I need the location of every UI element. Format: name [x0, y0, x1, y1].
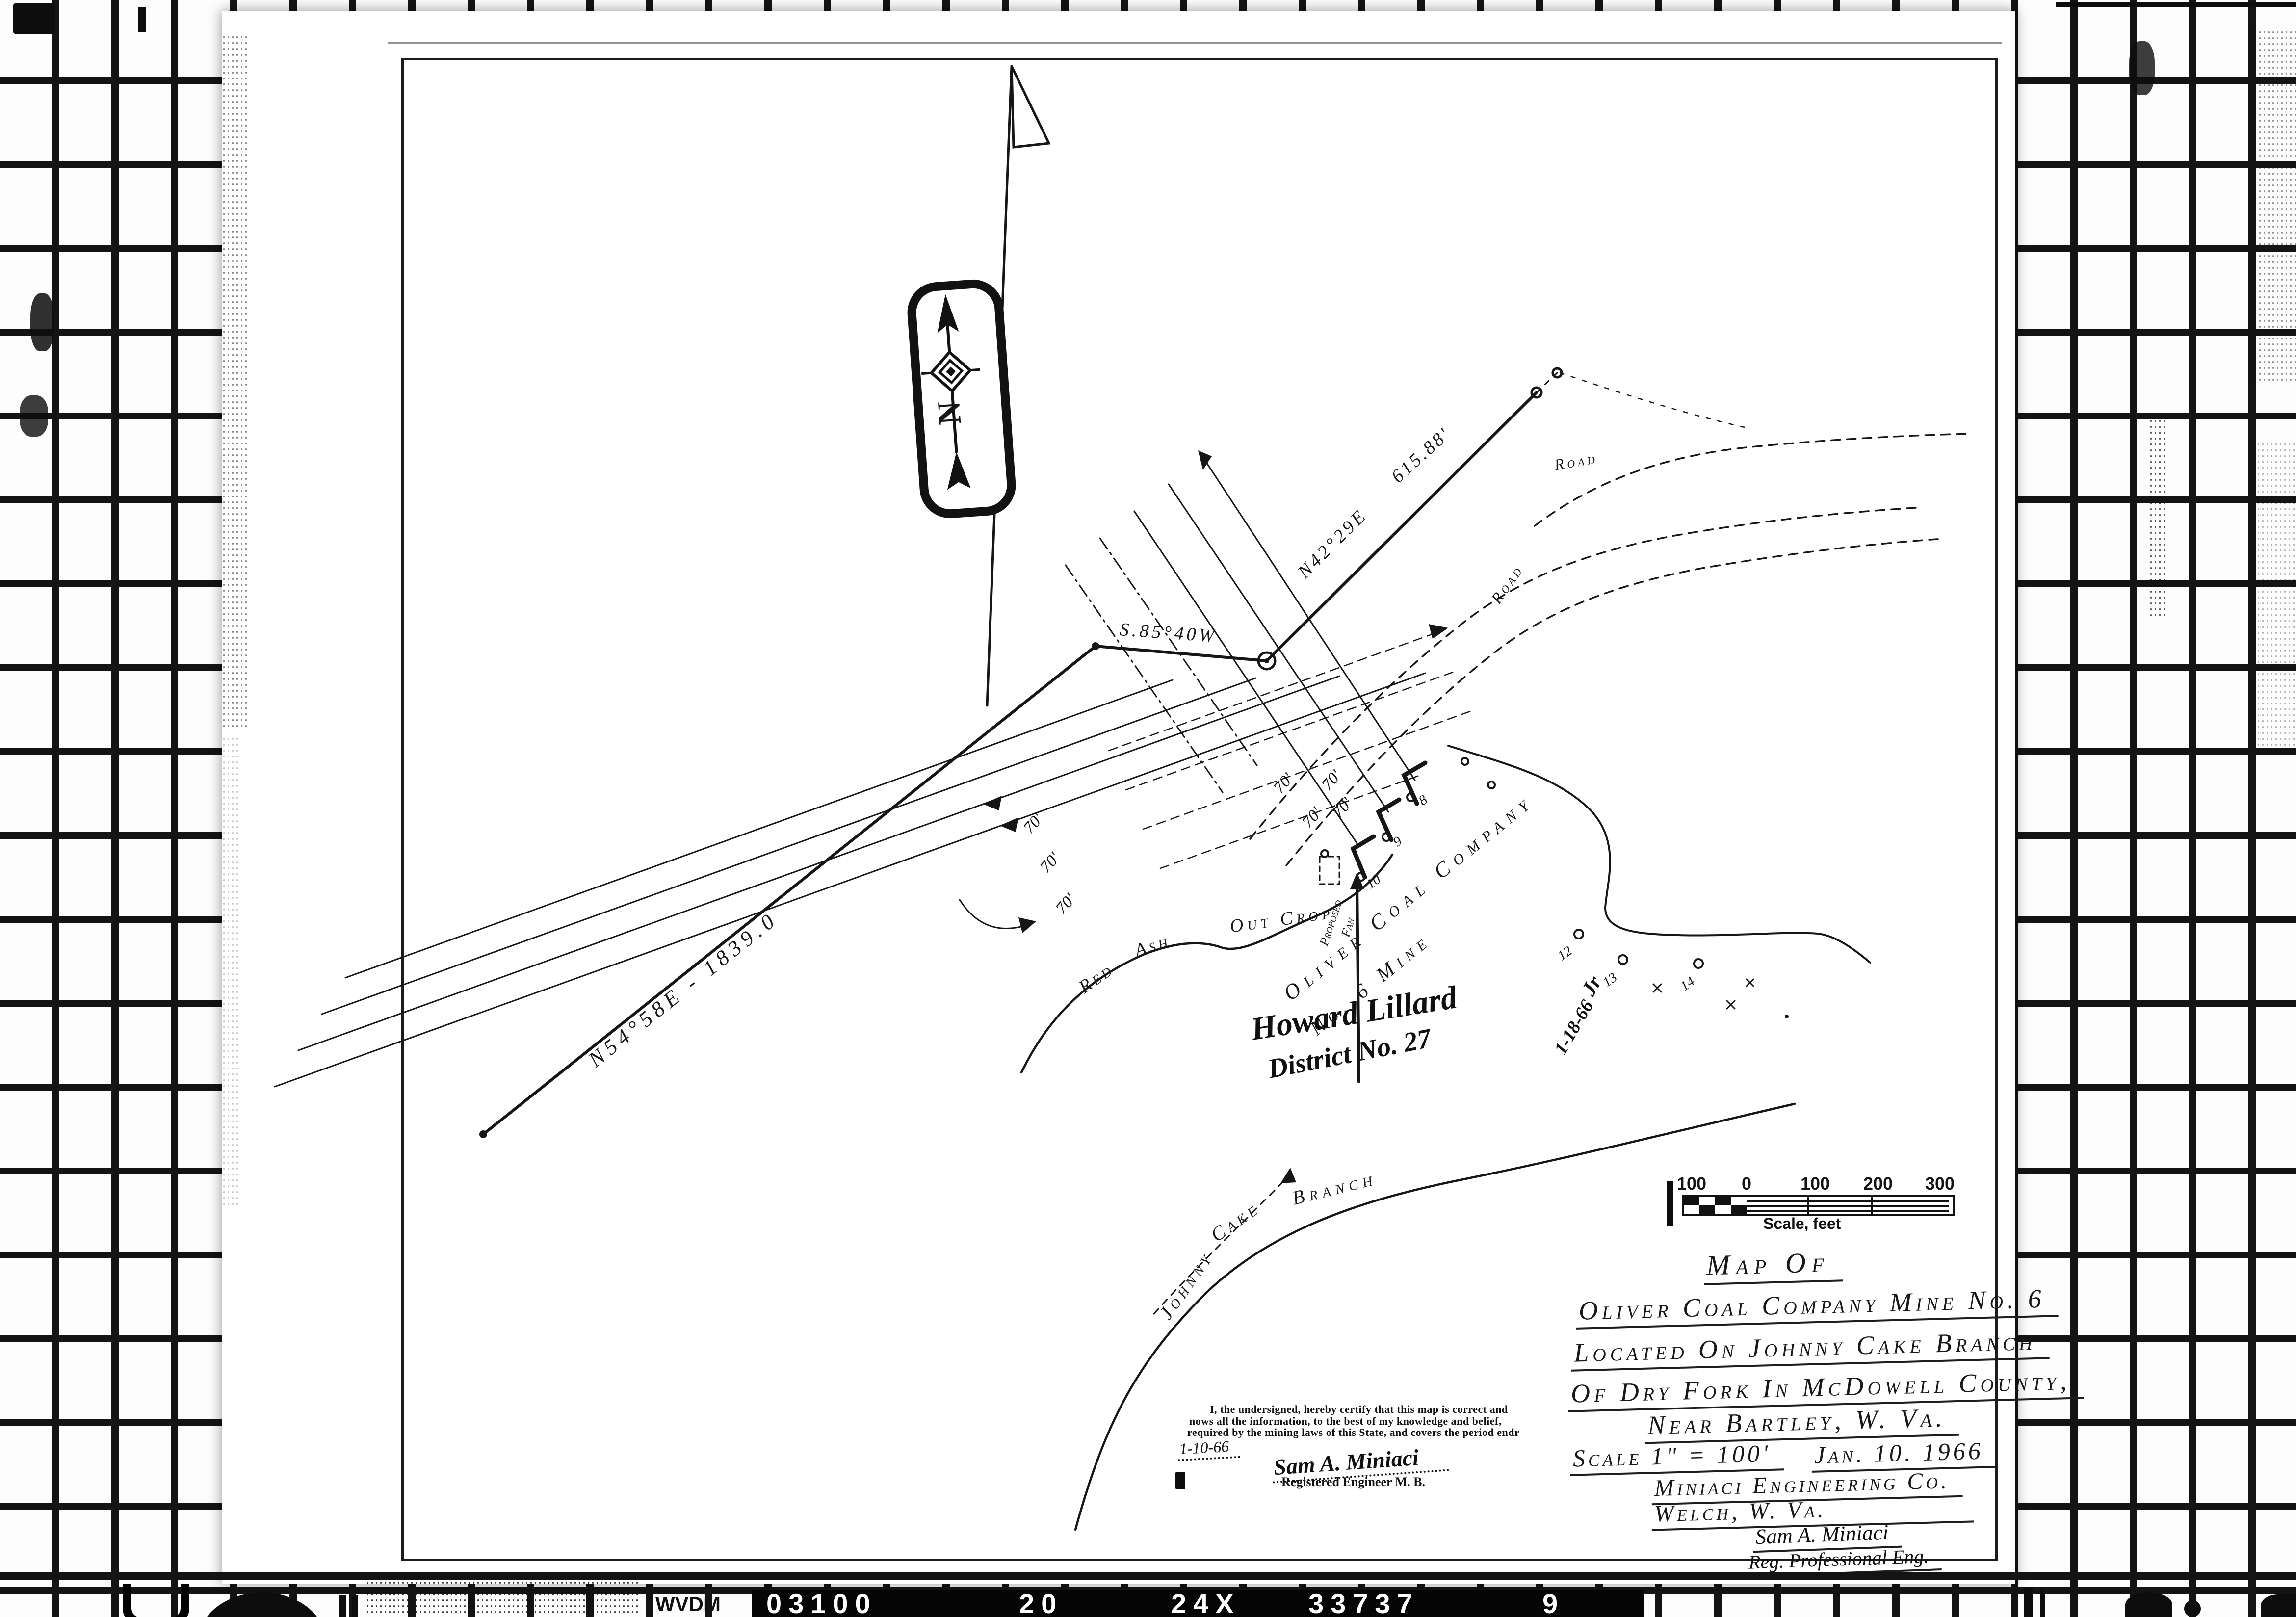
film-smudge	[20, 395, 48, 437]
scale-bar-checker	[1684, 1197, 1747, 1214]
film-u-mark	[123, 1584, 189, 1617]
film-edge-line	[2056, 2, 2296, 7]
fan-symbol	[1320, 857, 1339, 884]
film-smudge	[13, 3, 55, 34]
scale-bar-rules	[1747, 1197, 1949, 1214]
scale-tick: 100	[1800, 1174, 1830, 1194]
scale-tick: 300	[1925, 1174, 1955, 1194]
spot-marks	[1653, 979, 1789, 1018]
film-speckle-box	[365, 1580, 638, 1617]
curved-arrow	[960, 900, 1026, 929]
cert-line-1: I, the undersigned, hereby certify that …	[1210, 1403, 1508, 1416]
north-label: N	[930, 400, 969, 426]
contour-line	[1448, 746, 1870, 963]
scale-bar-divider	[1807, 1197, 1809, 1214]
north-arrow-icon	[915, 288, 990, 493]
film-edge-dirt	[2252, 442, 2296, 756]
film-prefix: WVDM	[655, 1592, 721, 1616]
title-date: Jan. 10. 1966	[1811, 1436, 1996, 1473]
film-bar-mark	[352, 1595, 358, 1617]
scale-tick: 200	[1863, 1174, 1893, 1194]
title-line-1: Map Of	[1703, 1245, 1843, 1285]
film-bar-mark	[2024, 1587, 2033, 1617]
film-code-segment: 03100	[766, 1588, 877, 1617]
film-bar-mark	[2040, 1590, 2045, 1617]
scale-tick: 100	[1677, 1174, 1706, 1194]
film-smudge	[138, 7, 146, 32]
film-corner-mark	[2261, 1594, 2296, 1617]
scale-tick: 0	[1742, 1174, 1751, 1194]
film-smudge	[2129, 41, 2155, 95]
film-code-strip: 03100 20 24X 33737 9	[752, 1590, 1644, 1617]
scale-bar-end-tick	[1667, 1181, 1673, 1226]
film-code-segment: 9	[1542, 1588, 1565, 1617]
scale-bar-caption: Scale, feet	[1763, 1215, 1841, 1233]
film-edge-dirt	[2249, 29, 2296, 383]
north-arrow-badge: N	[905, 278, 1018, 520]
film-bar-mark	[339, 1595, 346, 1617]
film-code-segment: 24X	[1171, 1588, 1241, 1617]
film-code-segment: 33737	[1308, 1588, 1419, 1617]
microfilm-frame: N N54°58E - 1839.0 S.85°40W N42°29E 615.…	[0, 0, 2296, 1617]
film-code-segment: 20	[1019, 1588, 1063, 1617]
film-dirt-band	[2149, 418, 2166, 616]
scale-bar-body	[1682, 1195, 1955, 1216]
film-frame-line	[0, 1572, 2296, 1580]
cert-reg-line: Registered Engineer M. B.	[1281, 1475, 1425, 1489]
road-lines	[1250, 373, 1972, 865]
scale-bar: 100 0 100 200 300 Scale, feet	[1667, 1174, 1966, 1231]
film-dot	[2184, 1600, 2201, 1617]
stray-ink-mark	[1175, 1472, 1185, 1489]
title-scale: Scale 1" = 100'	[1569, 1438, 1784, 1476]
film-smudge	[30, 293, 54, 351]
film-blob	[2125, 1592, 2172, 1617]
cert-date: 1-10-66	[1177, 1437, 1240, 1461]
scale-bar-divider	[1871, 1197, 1873, 1214]
